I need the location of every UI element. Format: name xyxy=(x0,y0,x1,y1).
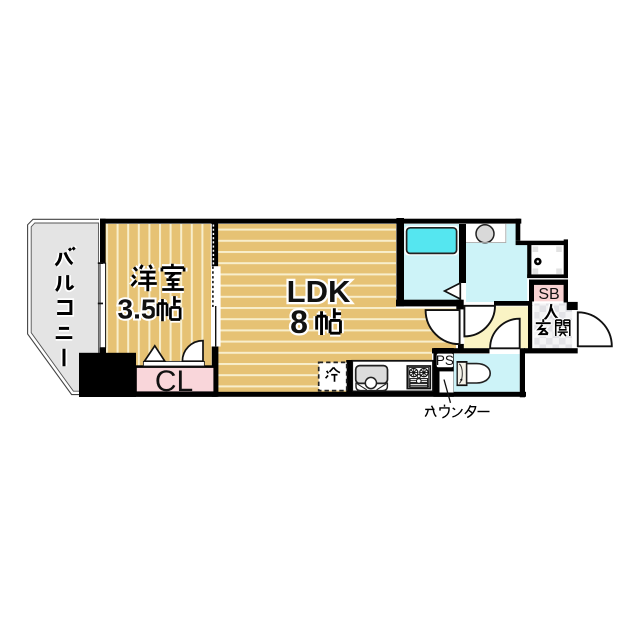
svg-text:8: 8 xyxy=(290,304,308,340)
svg-text:SB: SB xyxy=(538,286,559,303)
svg-text:PS: PS xyxy=(436,353,454,368)
svg-text:3.5: 3.5 xyxy=(118,294,157,325)
svg-text:CL: CL xyxy=(155,365,193,398)
